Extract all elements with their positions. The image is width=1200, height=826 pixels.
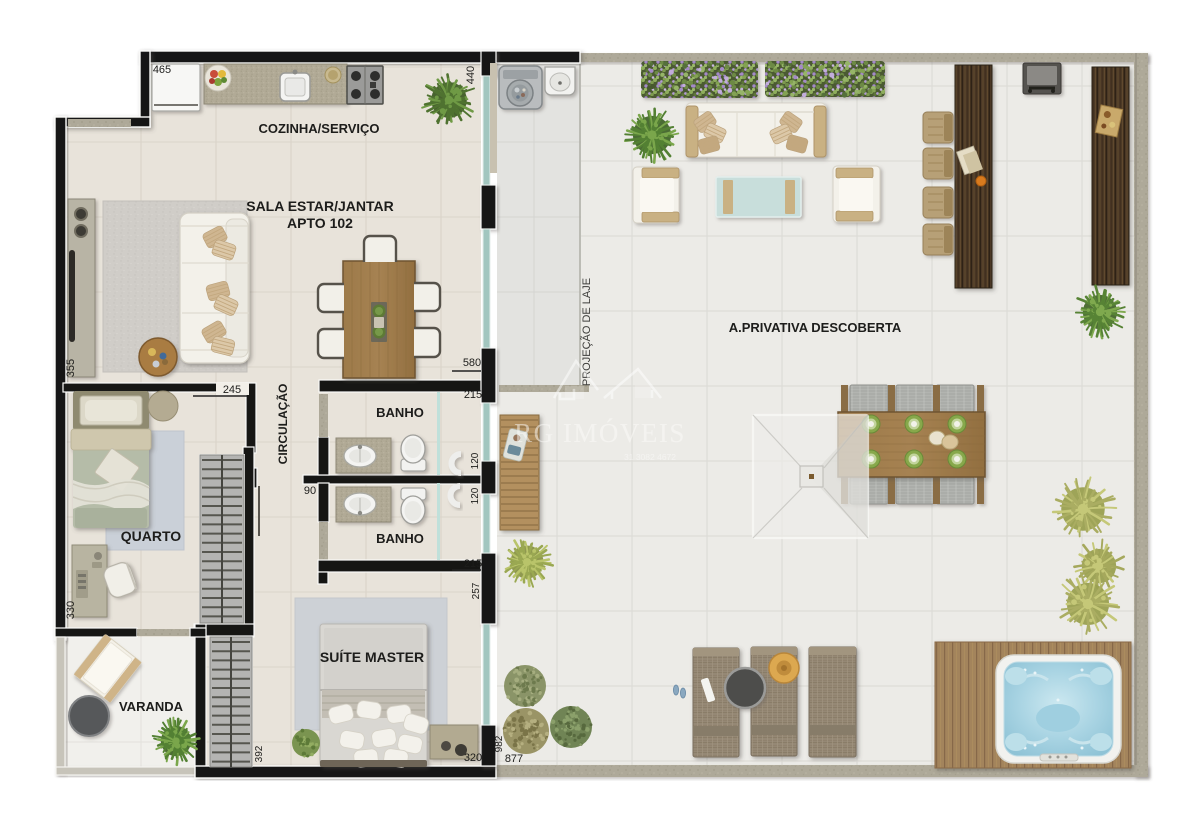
svg-text:257: 257 (471, 582, 482, 599)
svg-text:SALA ESTAR/JANTAR: SALA ESTAR/JANTAR (246, 198, 394, 214)
svg-text:APTO 102: APTO 102 (287, 215, 353, 231)
svg-text:COZINHA/SERVIÇO: COZINHA/SERVIÇO (258, 121, 379, 136)
svg-text:245: 245 (223, 384, 241, 396)
svg-text:355: 355 (65, 359, 77, 377)
svg-text:SUÍTE MASTER: SUÍTE MASTER (320, 649, 424, 665)
svg-text:VARANDA: VARANDA (119, 699, 184, 714)
svg-text:440: 440 (465, 66, 477, 84)
svg-text:877: 877 (505, 753, 523, 765)
svg-text:QUARTO: QUARTO (121, 528, 182, 544)
svg-text:215: 215 (464, 558, 482, 570)
svg-text:BANHO: BANHO (376, 531, 424, 546)
svg-text:BANHO: BANHO (376, 405, 424, 420)
svg-text:90: 90 (304, 485, 316, 497)
svg-text:31 3082 4672: 31 3082 4672 (624, 452, 676, 462)
svg-text:CIRCULAÇÃO: CIRCULAÇÃO (275, 384, 290, 465)
svg-text:215: 215 (464, 389, 482, 401)
svg-text:320: 320 (464, 752, 482, 764)
svg-text:120: 120 (470, 452, 481, 469)
svg-text:580: 580 (463, 357, 481, 369)
svg-text:982: 982 (494, 735, 505, 752)
svg-text:465: 465 (153, 64, 171, 76)
svg-text:330: 330 (65, 601, 77, 619)
svg-text:120: 120 (470, 487, 481, 504)
svg-text:RG IMÓVEIS: RG IMÓVEIS (514, 418, 686, 448)
svg-text:392: 392 (254, 745, 265, 762)
svg-text:A.PRIVATIVA DESCOBERTA: A.PRIVATIVA DESCOBERTA (729, 320, 902, 335)
